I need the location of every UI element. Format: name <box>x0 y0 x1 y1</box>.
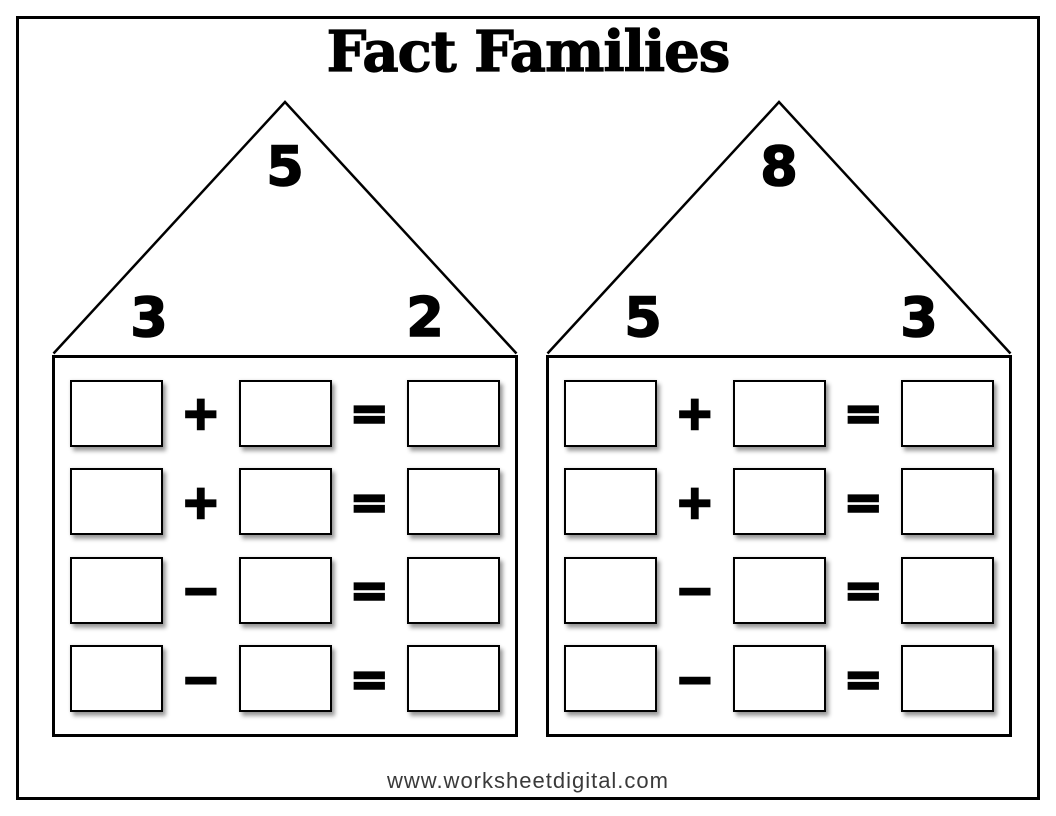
answer-box-result[interactable] <box>407 645 500 712</box>
answer-box-result[interactable] <box>901 468 994 535</box>
answer-box-second[interactable] <box>239 380 332 447</box>
answer-box-result[interactable] <box>407 468 500 535</box>
answer-box-first[interactable] <box>70 468 163 535</box>
answer-box-second[interactable] <box>733 557 826 624</box>
footer-url: www.worksheetdigital.com <box>0 768 1056 794</box>
answer-box-second[interactable] <box>733 380 826 447</box>
fact-family-house-left: 5 3 2 + = + = − = <box>52 100 518 737</box>
worksheet-page: Fact Families 5 3 2 + = + = <box>0 0 1056 816</box>
answer-box-first[interactable] <box>564 645 657 712</box>
roof-number-top: 8 <box>760 140 798 194</box>
answer-box-first[interactable] <box>564 557 657 624</box>
equation-row: − = <box>70 645 500 712</box>
equals-sign: = <box>332 390 408 436</box>
equals-sign: = <box>826 567 902 613</box>
answer-box-second[interactable] <box>733 645 826 712</box>
equals-sign: = <box>826 479 902 525</box>
equation-row: + = <box>564 380 994 447</box>
answer-box-first[interactable] <box>564 380 657 447</box>
operator-sign: − <box>657 567 733 613</box>
house-body: + = + = − = − <box>52 355 518 737</box>
answer-box-result[interactable] <box>901 557 994 624</box>
equation-row: + = <box>564 468 994 535</box>
answer-box-result[interactable] <box>901 645 994 712</box>
roof-number-top: 5 <box>266 140 304 194</box>
equals-sign: = <box>332 567 408 613</box>
answer-box-first[interactable] <box>564 468 657 535</box>
page-title: Fact Families <box>0 24 1056 80</box>
equation-row: − = <box>564 645 994 712</box>
fact-family-house-right: 8 5 3 + = + = − = <box>546 100 1012 737</box>
house-body: + = + = − = − <box>546 355 1012 737</box>
answer-box-result[interactable] <box>407 557 500 624</box>
operator-sign: − <box>657 656 733 702</box>
answer-box-first[interactable] <box>70 645 163 712</box>
operator-sign: + <box>657 390 733 436</box>
roof-number-left: 5 <box>624 291 662 345</box>
equals-sign: = <box>332 656 408 702</box>
operator-sign: − <box>163 656 239 702</box>
operator-sign: + <box>163 479 239 525</box>
roof-number-right: 3 <box>900 291 938 345</box>
roof-number-right: 2 <box>406 291 444 345</box>
equals-sign: = <box>826 656 902 702</box>
operator-sign: + <box>657 479 733 525</box>
equation-row: + = <box>70 468 500 535</box>
equation-row: + = <box>70 380 500 447</box>
answer-box-second[interactable] <box>239 645 332 712</box>
answer-box-second[interactable] <box>239 468 332 535</box>
answer-box-result[interactable] <box>407 380 500 447</box>
operator-sign: − <box>163 567 239 613</box>
answer-box-first[interactable] <box>70 380 163 447</box>
equals-sign: = <box>332 479 408 525</box>
answer-box-second[interactable] <box>239 557 332 624</box>
operator-sign: + <box>163 390 239 436</box>
equation-row: − = <box>564 557 994 624</box>
roof-number-left: 3 <box>130 291 168 345</box>
equals-sign: = <box>826 390 902 436</box>
answer-box-result[interactable] <box>901 380 994 447</box>
equation-row: − = <box>70 557 500 624</box>
answer-box-first[interactable] <box>70 557 163 624</box>
answer-box-second[interactable] <box>733 468 826 535</box>
